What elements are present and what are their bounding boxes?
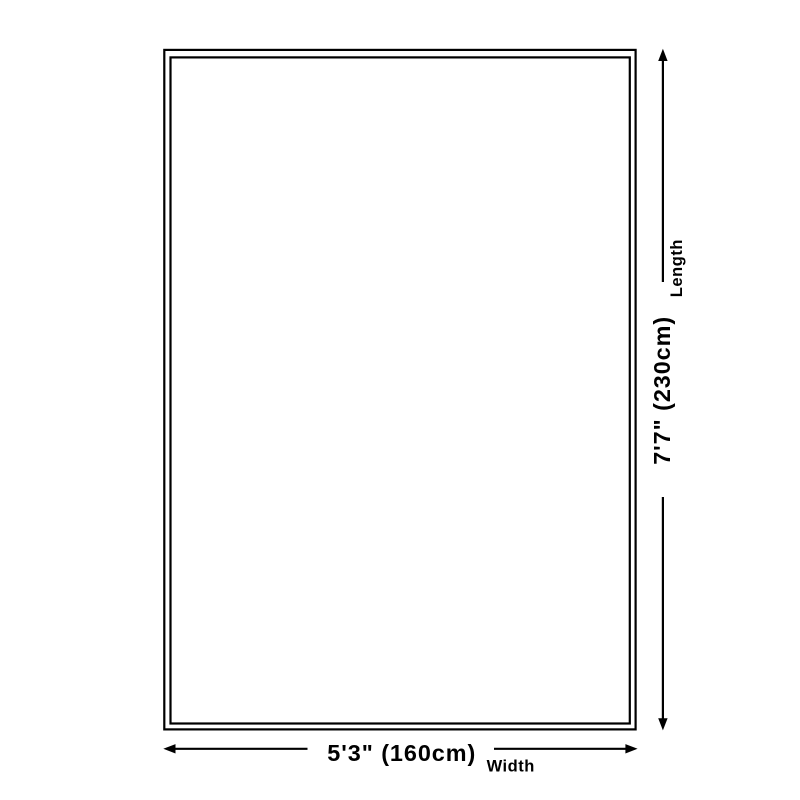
svg-text:Width: Width <box>487 758 535 776</box>
svg-text:7'7" (230cm): 7'7" (230cm) <box>649 317 675 465</box>
svg-text:5'3" (160cm): 5'3" (160cm) <box>327 740 475 766</box>
svg-text:Length: Length <box>668 240 686 298</box>
